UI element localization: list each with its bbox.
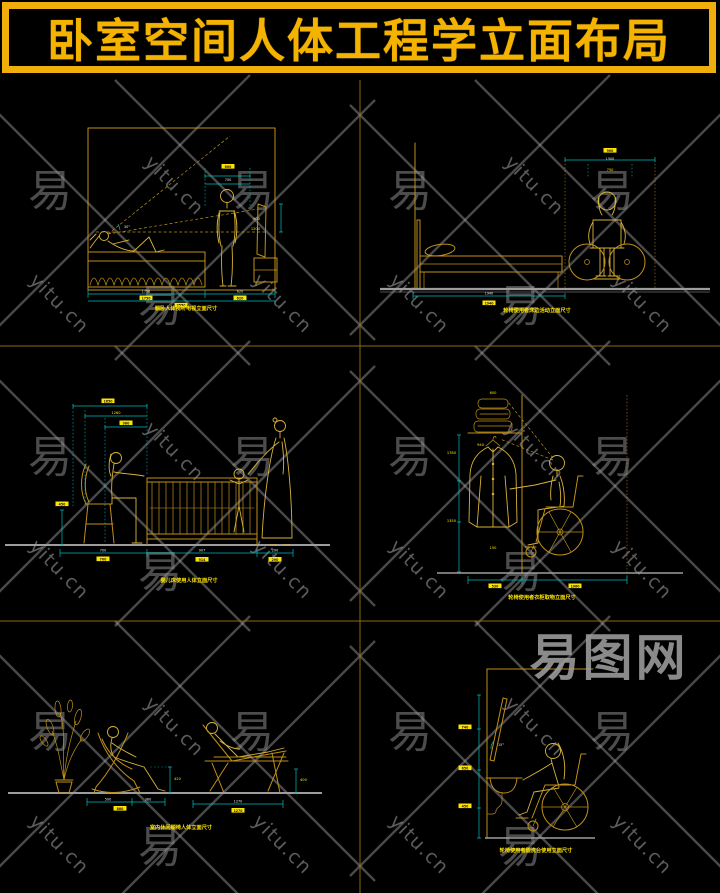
svg-text:1650: 1650 bbox=[104, 399, 114, 403]
dim-label-box: 960 bbox=[120, 421, 133, 426]
dim-label: 380 bbox=[145, 798, 151, 802]
panel-caption: 轮椅使用者盥洗台使用立面尺寸 bbox=[500, 846, 573, 854]
svg-text:880: 880 bbox=[117, 807, 124, 811]
dim-label: 500 bbox=[105, 798, 111, 802]
svg-text:700: 700 bbox=[100, 557, 107, 561]
title-banner: 卧室空间人体工程学立面布局 bbox=[2, 2, 716, 73]
panel-caption: 轮椅使用者床边活动立面尺寸 bbox=[503, 306, 571, 314]
svg-text:620: 620 bbox=[237, 296, 244, 300]
panel-caption: 婴儿床使用人体立面尺寸 bbox=[160, 576, 218, 584]
dim-label: 940 bbox=[477, 443, 485, 447]
dim-label: 1940 bbox=[485, 292, 494, 296]
dim-label-box: 620 bbox=[234, 296, 247, 301]
svg-text:914: 914 bbox=[199, 558, 206, 562]
svg-text:1270: 1270 bbox=[234, 809, 244, 813]
dim-label: 400 bbox=[300, 778, 308, 782]
panel-caption: 室内休闲躺椅人体立面尺寸 bbox=[150, 823, 213, 831]
svg-text:740: 740 bbox=[462, 725, 469, 729]
dim-label: 420 bbox=[174, 777, 182, 781]
dim-label: 1200 bbox=[251, 227, 261, 231]
svg-text:530: 530 bbox=[492, 584, 499, 588]
dim-label-box: 700 bbox=[97, 557, 110, 562]
dim-label-box: 1060 bbox=[569, 584, 582, 589]
dim-label-box: 880 bbox=[114, 806, 127, 811]
panel-caption: 躺卧人体视听电视立面尺寸 bbox=[155, 304, 218, 312]
dim-label: 900 bbox=[253, 217, 261, 221]
dim-label: 1270 bbox=[234, 800, 243, 804]
dim-label: 750 bbox=[607, 168, 615, 172]
dim-label-box: 1270 bbox=[232, 808, 245, 813]
svg-text:900: 900 bbox=[607, 149, 614, 153]
svg-text:600: 600 bbox=[225, 165, 232, 169]
dim-label: 1260 bbox=[111, 411, 121, 415]
page-title: 卧室空间人体工程学立面布局 bbox=[47, 5, 671, 71]
dim-label: 620 bbox=[237, 290, 243, 294]
cad-sheet: 卧室空间人体工程学立面布局 易 易 易 yitu.cn yitu.cn yitu… bbox=[0, 0, 720, 893]
dim-label-box: 650 bbox=[459, 766, 472, 771]
svg-text:1060: 1060 bbox=[571, 584, 581, 588]
dim-label-box: 450 bbox=[459, 804, 472, 809]
svg-text:1940: 1940 bbox=[485, 301, 495, 305]
svg-text:450: 450 bbox=[462, 804, 469, 808]
dim-label: 150 bbox=[490, 546, 498, 550]
dim-label-box: 450 bbox=[56, 502, 69, 507]
dim-label-box: 1650 bbox=[102, 399, 115, 404]
svg-text:1750: 1750 bbox=[142, 296, 152, 300]
dim-label-box: 290 bbox=[269, 557, 282, 562]
dim-label: 907 bbox=[199, 549, 205, 553]
dim-label: 30° bbox=[124, 225, 130, 229]
dim-label-box: 900 bbox=[604, 148, 617, 153]
dim-label: 600 bbox=[490, 391, 498, 395]
svg-text:650: 650 bbox=[462, 766, 469, 770]
dim-label: 700 bbox=[225, 178, 231, 182]
dim-label: 1350 bbox=[447, 519, 457, 523]
dim-label-box: 600 bbox=[222, 164, 235, 169]
svg-text:960: 960 bbox=[123, 421, 130, 425]
svg-text:290: 290 bbox=[272, 558, 279, 562]
dim-label-box: 1940 bbox=[483, 301, 496, 306]
dim-label: 1500 bbox=[606, 157, 615, 161]
dim-label: 1780 bbox=[447, 451, 457, 455]
dim-label-box: 530 bbox=[489, 584, 502, 589]
dim-label: 290 bbox=[272, 549, 278, 553]
svg-text:450: 450 bbox=[59, 502, 66, 506]
dim-label-box: 1750 bbox=[140, 296, 153, 301]
brand-watermark: 易图网 bbox=[530, 629, 689, 687]
dim-label: 700 bbox=[100, 549, 106, 553]
dim-label-box: 740 bbox=[459, 725, 472, 730]
cad-canvas: 易 易 易 yitu.cn yitu.cn yitu.cn 30° bbox=[0, 0, 720, 893]
panel-caption: 轮椅使用者衣柜取物立面尺寸 bbox=[508, 593, 576, 601]
dim-label-box: 914 bbox=[196, 557, 209, 562]
dim-label: 15° bbox=[498, 743, 504, 747]
dim-label: 1750 bbox=[142, 290, 151, 294]
